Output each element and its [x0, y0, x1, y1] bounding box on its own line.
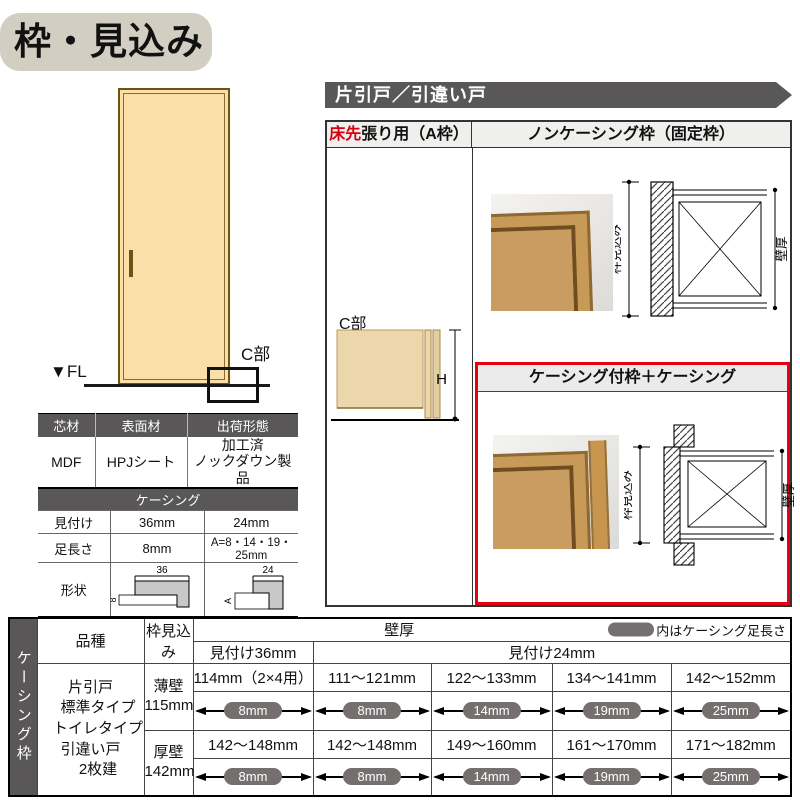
header-noncasing-frame: ノンケーシング枠（固定枠）: [472, 122, 790, 148]
pill-cell: 19mm: [552, 758, 671, 796]
range-value: 142～148mm: [193, 730, 313, 758]
pill-cell: 8mm: [313, 691, 431, 730]
c-detail-drawing: H: [331, 328, 471, 434]
pill-cell: 8mm: [193, 691, 313, 730]
casing-section-drawing: 枠見込み 壁厚: [624, 419, 800, 571]
subheader-mitsuke24: 見付け24mm: [313, 641, 791, 663]
range-value: 122～133mm: [431, 663, 552, 691]
door-elevation-figure: [118, 88, 230, 385]
header-wakumikomi: 枠見込み: [144, 618, 193, 663]
side-label-casing-frame: ケーシング枠: [9, 618, 37, 796]
casing-ashinagasa-36: 8mm: [110, 534, 204, 563]
pill-cell: 25mm: [671, 758, 791, 796]
header-rest-part: 張り用（A枠）: [361, 126, 469, 143]
material-header-shipping: 出荷形態: [187, 414, 298, 437]
casing-length-pill: 19mm: [583, 702, 641, 719]
range-value: 161～170mm: [552, 730, 671, 758]
range-value: 142～152mm: [671, 663, 791, 691]
material-table: 芯材 表面材 出荷形態 MDF HPJシート 加工済 ノックダウン製品: [38, 413, 298, 489]
photo-casing-board: [588, 440, 610, 549]
range-value: 111～121mm: [313, 663, 431, 691]
photo-door-corner: [493, 435, 619, 549]
svg-text:壁厚: 壁厚: [774, 236, 789, 261]
range-value: 142～148mm: [313, 730, 431, 758]
casing-length-pill: 8mm: [343, 768, 401, 785]
kabeatsu-label: 壁厚: [384, 619, 599, 640]
casing-length-pill: 8mm: [343, 702, 401, 719]
svg-text:壁厚: 壁厚: [781, 482, 796, 507]
photo-noncasing-frame: [491, 194, 613, 311]
casing-length-pill: 8mm: [224, 702, 282, 719]
casing-shape-36-cell: 36 8: [110, 563, 204, 618]
casing-length-pill: 25mm: [702, 702, 760, 719]
wall-thick-label: 厚壁 142mm: [144, 730, 193, 796]
photo-door-panel: [493, 469, 572, 549]
casing-length-pill: 14mm: [463, 702, 521, 719]
range-value: 149～160mm: [431, 730, 552, 758]
legend-pill: [608, 623, 654, 637]
c-section-marker: [207, 367, 259, 403]
svg-text:枠見込み: 枠見込み: [624, 470, 634, 520]
svg-text:24: 24: [263, 565, 275, 576]
svg-text:A: A: [223, 598, 233, 604]
material-value-core: MDF: [38, 437, 95, 488]
header-red-part: 床先: [329, 126, 361, 143]
casing-frame-highlight-box: ケーシング付枠＋ケーシング 枠見込み: [475, 362, 790, 605]
frame-spec-panel: 床先張り用（A枠） ノンケーシング枠（固定枠） C部 H: [325, 120, 792, 607]
pill-cell: 14mm: [431, 691, 552, 730]
casing-table: ケーシング 見付け 36mm 24mm 足長さ 8mm A=8・14・19・25…: [38, 488, 298, 618]
casing-row-mitsuke-label: 見付け: [38, 511, 110, 534]
door-handle: [129, 250, 133, 277]
casing-length-pill: 8mm: [224, 768, 282, 785]
material-header-core: 芯材: [38, 414, 95, 437]
svg-text:36: 36: [156, 565, 168, 576]
dimension-table: ケーシング枠 品種 枠見込み 壁厚 内はケーシング足長さ 見付け36mm 見付け…: [8, 617, 792, 797]
hinshu-list: 片引戸 標準タイプ トイレタイプ 引違い戸 2枚建: [37, 663, 144, 796]
header-floor-first-a-frame: 床先張り用（A枠）: [327, 122, 472, 148]
pill-cell: 19mm: [552, 691, 671, 730]
casing-length-pill: 25mm: [702, 768, 760, 785]
wall-thin-label: 薄壁 115mm: [144, 663, 193, 730]
spec-sheet: 枠・見込み ▼FL C部 芯材 表面材 出荷形態 MDF HPJシート 加工済 …: [0, 0, 800, 800]
casing-row-shape-label: 形状: [38, 563, 110, 618]
material-header-surface: 表面材: [95, 414, 187, 437]
pill-cell: 14mm: [431, 758, 552, 796]
range-value: 171～182mm: [671, 730, 791, 758]
noncasing-section-drawing: 枠見込み 壁厚: [615, 176, 791, 324]
subheader-mitsuke36: 見付け36mm: [193, 641, 313, 663]
material-value-surface: HPJシート: [95, 437, 187, 488]
door-inner-line: [123, 93, 225, 380]
svg-text:8: 8: [111, 597, 118, 602]
header-hinshu: 品種: [37, 618, 144, 663]
casing-table-title: ケーシング: [38, 489, 298, 511]
casing-profile-36-drawing: 36 8: [111, 563, 203, 613]
svg-text:枠見込み: 枠見込み: [615, 224, 623, 274]
header-kabeatsu: 壁厚 内はケーシング足長さ: [193, 618, 791, 641]
column-divider: [472, 148, 473, 605]
photo-door-corner: [491, 194, 613, 311]
range-value: 114mm（2×4用）: [193, 663, 313, 691]
section-banner: 片引戸／引違い戸: [325, 82, 792, 108]
header-casing-frame: ケーシング付枠＋ケーシング: [478, 365, 787, 392]
pill-cell: 8mm: [193, 758, 313, 796]
casing-profile-24-drawing: 24 A: [205, 563, 297, 613]
page-title: 枠・見込み: [0, 13, 212, 71]
material-value-shipping: 加工済 ノックダウン製品: [187, 437, 298, 488]
casing-ashinagasa-24: A=8・14・19・25mm: [204, 534, 298, 563]
casing-mitsuke-24: 24mm: [204, 511, 298, 534]
pill-cell: 8mm: [313, 758, 431, 796]
floor-level-label: ▼FL: [50, 362, 87, 382]
casing-mitsuke-36: 36mm: [110, 511, 204, 534]
casing-shape-24-cell: 24 A: [204, 563, 298, 618]
legend-text: 内はケーシング足長さ: [656, 620, 786, 639]
range-value: 134～141mm: [552, 663, 671, 691]
photo-door-panel: [491, 229, 575, 311]
pill-cell: 25mm: [671, 691, 791, 730]
photo-casing-frame: [493, 435, 619, 549]
casing-length-pill: 19mm: [583, 768, 641, 785]
c-section-label: C部: [241, 340, 270, 365]
casing-length-pill: 14mm: [463, 768, 521, 785]
casing-row-ashinagasa-label: 足長さ: [38, 534, 110, 563]
svg-text:H: H: [436, 371, 447, 388]
legend-note: 内はケーシング足長さ: [608, 620, 786, 639]
